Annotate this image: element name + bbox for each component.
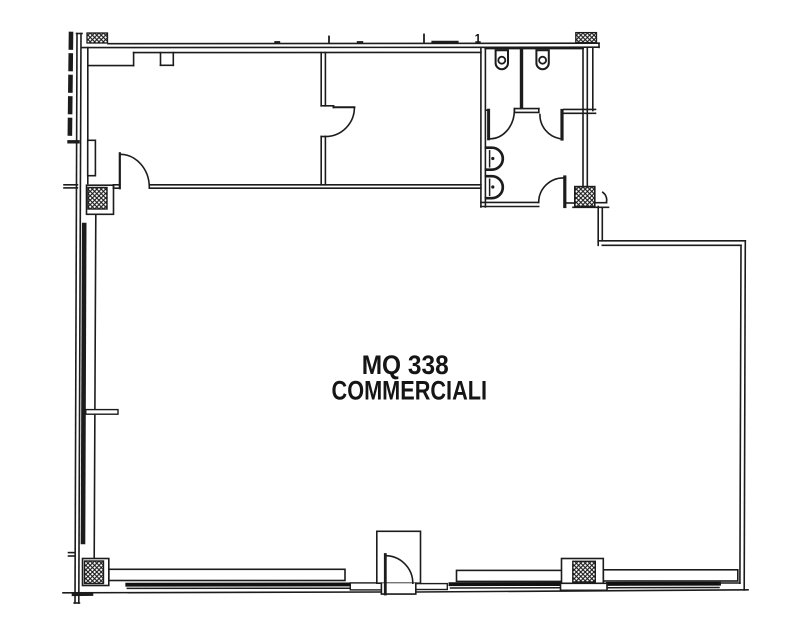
svg-text:COMMERCIALI: COMMERCIALI	[332, 376, 488, 406]
svg-text:1: 1	[475, 34, 482, 46]
